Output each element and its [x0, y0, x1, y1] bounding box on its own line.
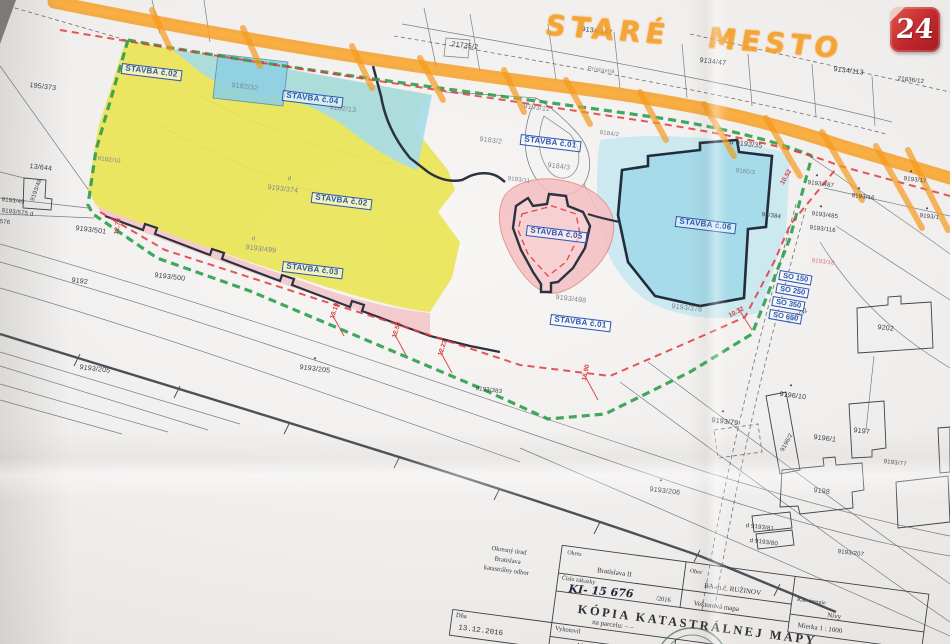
parcel-number-label: ▴	[925, 206, 928, 212]
logo-24-text: 24	[895, 14, 935, 45]
parcel-number-label: ▴	[819, 204, 822, 210]
parcel-number-label: ▴	[815, 173, 818, 179]
parcel-number-label: ▴	[659, 478, 662, 484]
parcel-number-label: 576	[0, 219, 11, 227]
parcel-number-label: ▴	[313, 356, 316, 362]
parcel-number-label: ▴	[789, 383, 792, 389]
kat-uzemie-value: Nivy	[827, 611, 842, 621]
parcel-number-label: d	[287, 176, 291, 183]
dna-label: Dňa	[456, 612, 468, 620]
parcel-number-label: ▴	[857, 186, 860, 192]
parcel-number-label: d	[251, 236, 255, 243]
parcel-number-label: ▴	[721, 409, 724, 415]
logo-24: 24	[890, 7, 940, 52]
parcel-number-label: ▴	[909, 169, 912, 175]
cadastral-map-photo: 195/37313/6449193/499193/575 d5769193/48…	[0, 0, 950, 644]
